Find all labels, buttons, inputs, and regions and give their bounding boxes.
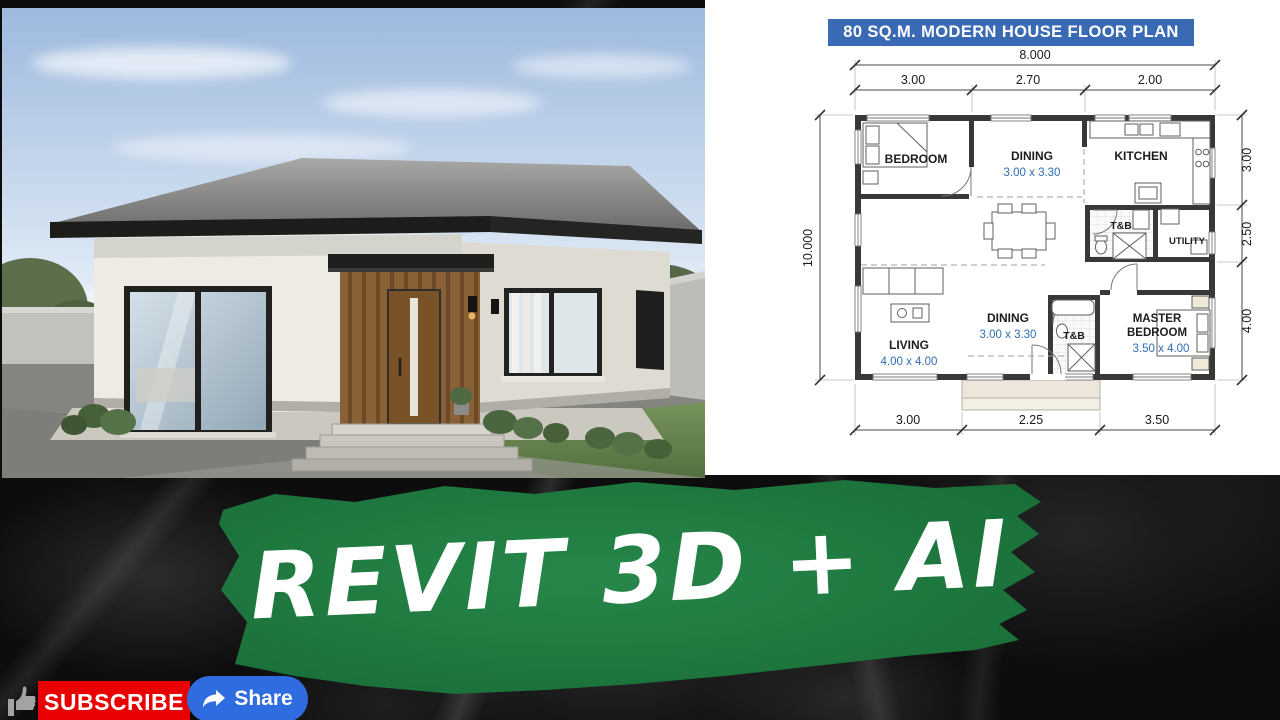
room-size-dining-top: 3.00 x 3.30 (1004, 167, 1061, 179)
room-label-dining-lower: DINING (987, 311, 1029, 325)
house-scene (2, 8, 705, 478)
dim-overall-top: 8.000 (1019, 48, 1050, 62)
share-arrow-icon (202, 689, 226, 709)
room-label-dining-top: DINING (1011, 149, 1053, 163)
dim-bottom-2: 2.25 (1019, 413, 1043, 427)
window-left-sliding (120, 286, 276, 438)
house-render-photo (2, 8, 705, 478)
window-right (501, 288, 605, 382)
subscribe-button[interactable]: SUBSCRIBE (38, 681, 190, 720)
room-size-master: 3.50 x 4.00 (1133, 343, 1190, 355)
room-size-living: 4.00 x 4.00 (881, 356, 938, 368)
dim-right-2: 2.50 (1240, 222, 1254, 246)
room-label-master-1: MASTER (1133, 313, 1182, 325)
perimeter-wall-left (2, 307, 102, 364)
dim-overall-left: 10.000 (801, 229, 815, 267)
dim-right-1: 3.00 (1240, 148, 1254, 172)
door-swings (942, 167, 1137, 374)
room-label-tb-lower: T&B (1063, 330, 1085, 342)
porch (962, 380, 1100, 410)
floor-plan-drawing: 8.000 3.00 2.70 2.00 10.000 3.00 2.50 4.… (705, 0, 1280, 475)
dim-bottom-1: 3.00 (896, 413, 920, 427)
share-button[interactable]: Share (187, 676, 308, 720)
room-label-living: LIVING (889, 338, 929, 352)
dim-top-1: 3.00 (901, 73, 925, 87)
share-label: Share (234, 687, 292, 711)
door-canopy (328, 254, 494, 268)
dim-bottom-3: 3.50 (1145, 413, 1169, 427)
front-door (388, 290, 440, 424)
thumbnail-canvas: 80 SQ.M. MODERN HOUSE FLOOR PLAN (0, 0, 1280, 720)
room-label-kitchen: KITCHEN (1114, 149, 1167, 163)
door-canopy-edge (328, 268, 494, 272)
thumbs-up-icon (6, 684, 38, 718)
dim-right-3: 4.00 (1240, 309, 1254, 333)
floor-plan-panel: 80 SQ.M. MODERN HOUSE FLOOR PLAN (705, 0, 1280, 475)
room-label-master-2: BEDROOM (1127, 327, 1187, 339)
window-side-small (636, 290, 664, 370)
room-size-dining-lower: 3.00 x 3.30 (980, 329, 1037, 341)
dim-top-2: 2.70 (1016, 73, 1040, 87)
room-label-utility: UTILITY (1169, 236, 1206, 247)
subscribe-label: SUBSCRIBE (44, 689, 184, 716)
room-label-tb-upper: T&B (1110, 220, 1132, 232)
dim-top-3: 2.00 (1138, 73, 1162, 87)
room-label-bedroom: BEDROOM (885, 152, 948, 166)
